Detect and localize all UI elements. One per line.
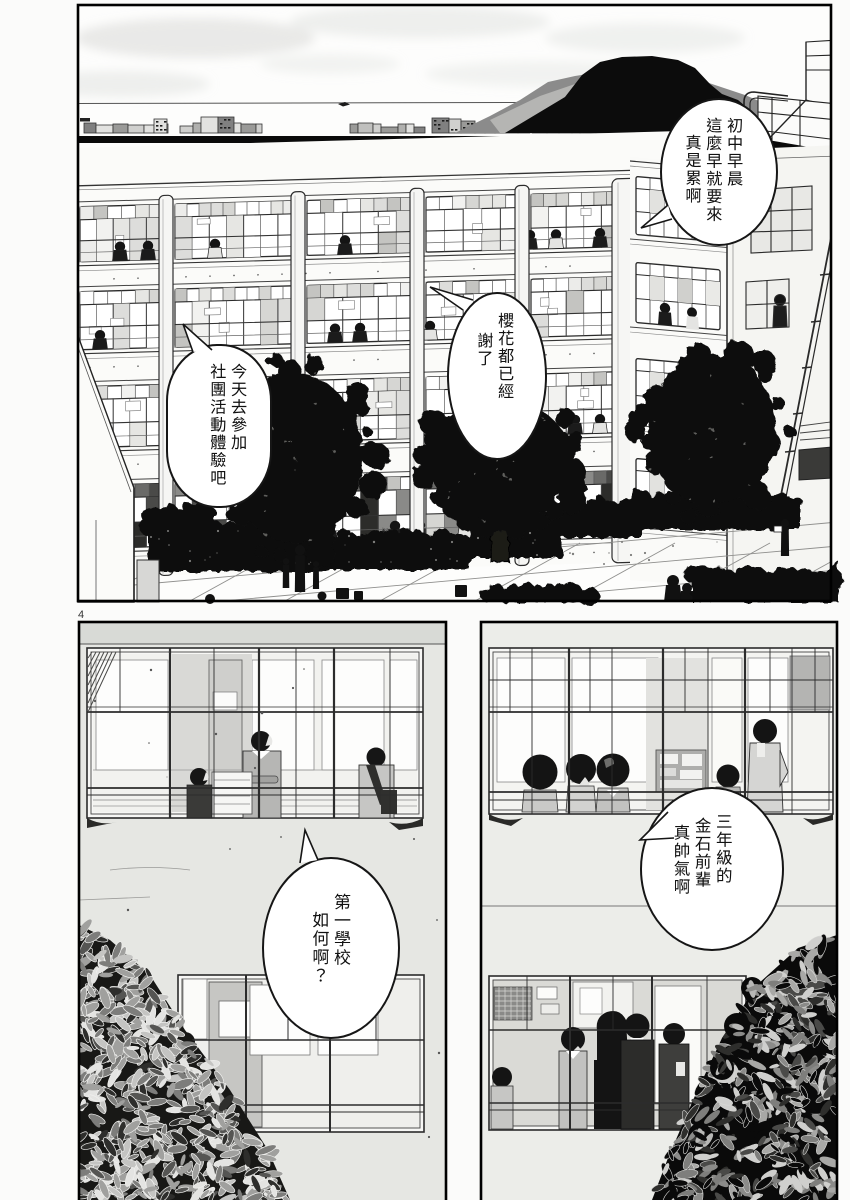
- svg-text:4: 4: [78, 609, 84, 621]
